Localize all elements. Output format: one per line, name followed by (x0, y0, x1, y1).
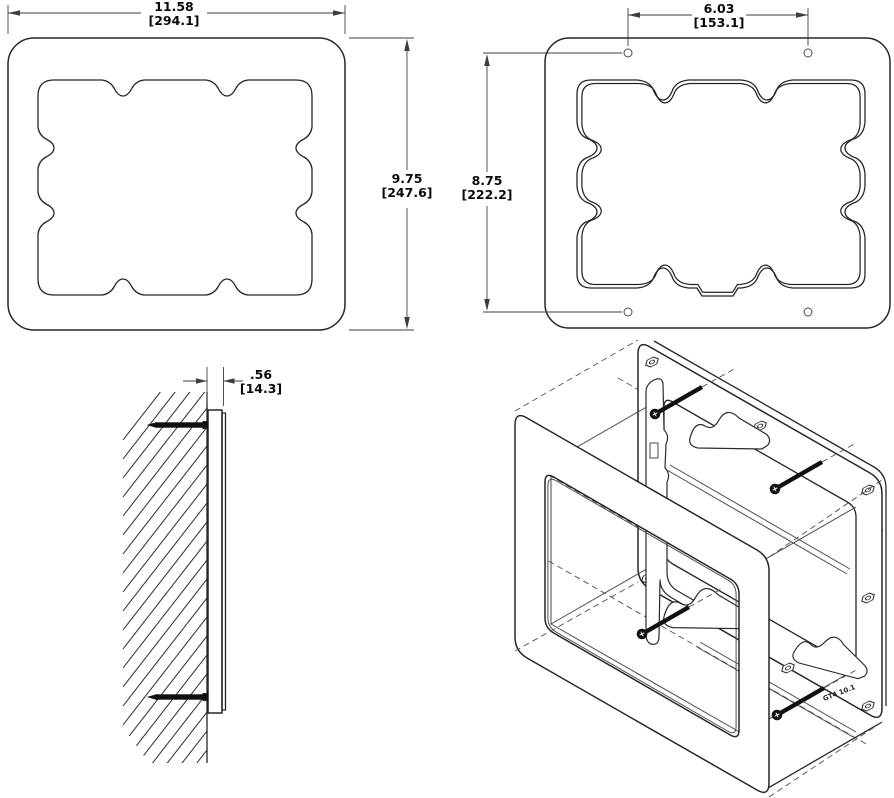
dim-front-height-mm: [247.6] (382, 185, 433, 200)
dim-front-width: 11.58 [294.1] (8, 0, 345, 34)
dim-front-height-in: 9.75 (392, 171, 423, 186)
drawing-sheet: 11.58 [294.1] 9.75 [247.6] (0, 0, 894, 798)
bezel-side-lip (222, 413, 226, 710)
dim-back-pitch-in: 8.75 (472, 173, 503, 188)
dim-back-span-mm: [153.1] (694, 15, 745, 30)
bezel-side-profile (208, 410, 222, 713)
dim-side-protrusion-mm: [14.3] (240, 381, 282, 396)
wall-anchor-screw (149, 694, 209, 701)
front-view: 11.58 [294.1] 9.75 [247.6] (8, 0, 432, 330)
dim-front-width-in: 11.58 (154, 0, 194, 14)
dim-back-pitch-mm: [222.2] (462, 187, 513, 202)
wall-anchor-screw (149, 422, 209, 429)
box-body-edge (768, 722, 882, 788)
wall-hatching (123, 332, 207, 798)
back-view: 6.03 [153.1] 8.75 [222.2] (462, 1, 890, 328)
technical-drawing-canvas: 11.58 [294.1] 9.75 [247.6] (0, 0, 894, 798)
isometric-exploded-view: GT4 10.1 (515, 340, 886, 797)
dim-side-protrusion-in: .56 (250, 367, 272, 382)
dim-back-span-in: 6.03 (704, 1, 735, 16)
dim-front-height: 9.75 [247.6] (349, 38, 432, 330)
bezel-outer-outline (8, 38, 345, 330)
dim-front-width-mm: [294.1] (149, 13, 200, 28)
side-view: .56 [14.3] (123, 332, 282, 798)
